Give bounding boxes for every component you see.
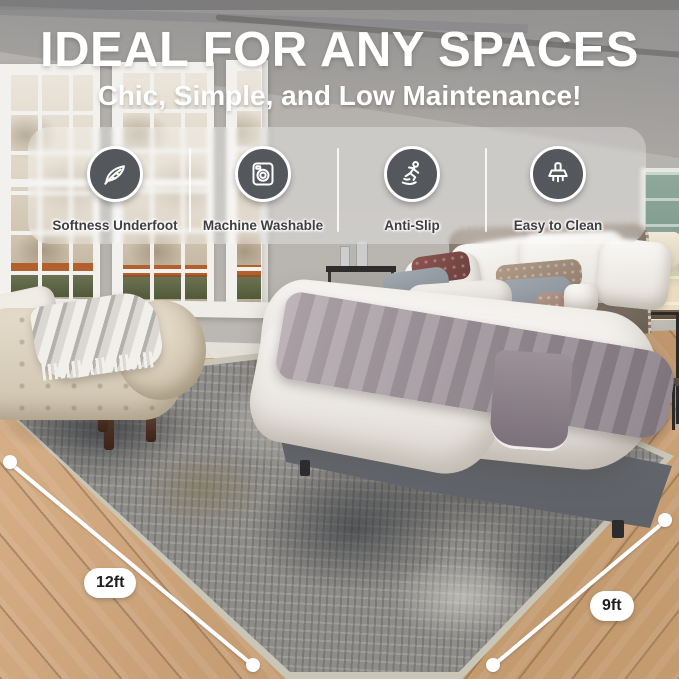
measure-endpoint — [486, 658, 500, 672]
feature-easy-clean: Easy to Clean — [483, 146, 633, 233]
nightstand-top — [326, 266, 396, 272]
dimension-label-12ft: 12ft — [84, 568, 136, 598]
feature-circle — [384, 146, 440, 202]
candle-holder — [356, 240, 368, 268]
washing-machine-icon — [248, 159, 278, 189]
feature-circle — [87, 146, 143, 202]
slip-person-icon — [397, 159, 427, 189]
feature-circle — [530, 146, 586, 202]
bed-leg — [612, 520, 624, 538]
feature-softness: Softness Underfoot — [40, 146, 190, 233]
feature-anti-slip: Anti-Slip — [337, 146, 487, 233]
feature-washable: Machine Washable — [188, 146, 338, 233]
crown-molding — [0, 0, 679, 10]
feature-label: Softness Underfoot — [40, 218, 190, 233]
pillow — [595, 236, 674, 311]
feature-circle — [235, 146, 291, 202]
feature-label: Easy to Clean — [483, 218, 633, 233]
blanket-drape — [489, 349, 574, 452]
measure-endpoint — [3, 455, 17, 469]
candle-holder — [340, 246, 350, 268]
feature-label: Machine Washable — [188, 218, 338, 233]
feature-label: Anti-Slip — [337, 218, 487, 233]
feather-icon — [100, 159, 130, 189]
dimension-label-9ft: 9ft — [590, 591, 634, 621]
cleaning-brush-icon — [543, 159, 573, 189]
page-title: IDEAL FOR ANY SPACES — [0, 22, 679, 78]
measure-endpoint — [246, 658, 260, 672]
page-subtitle: Chic, Simple, and Low Maintenance! — [0, 80, 679, 112]
product-image: IDEAL FOR ANY SPACES Chic, Simple, and L… — [0, 0, 679, 679]
measure-endpoint — [658, 513, 672, 527]
bed-leg — [300, 460, 310, 476]
